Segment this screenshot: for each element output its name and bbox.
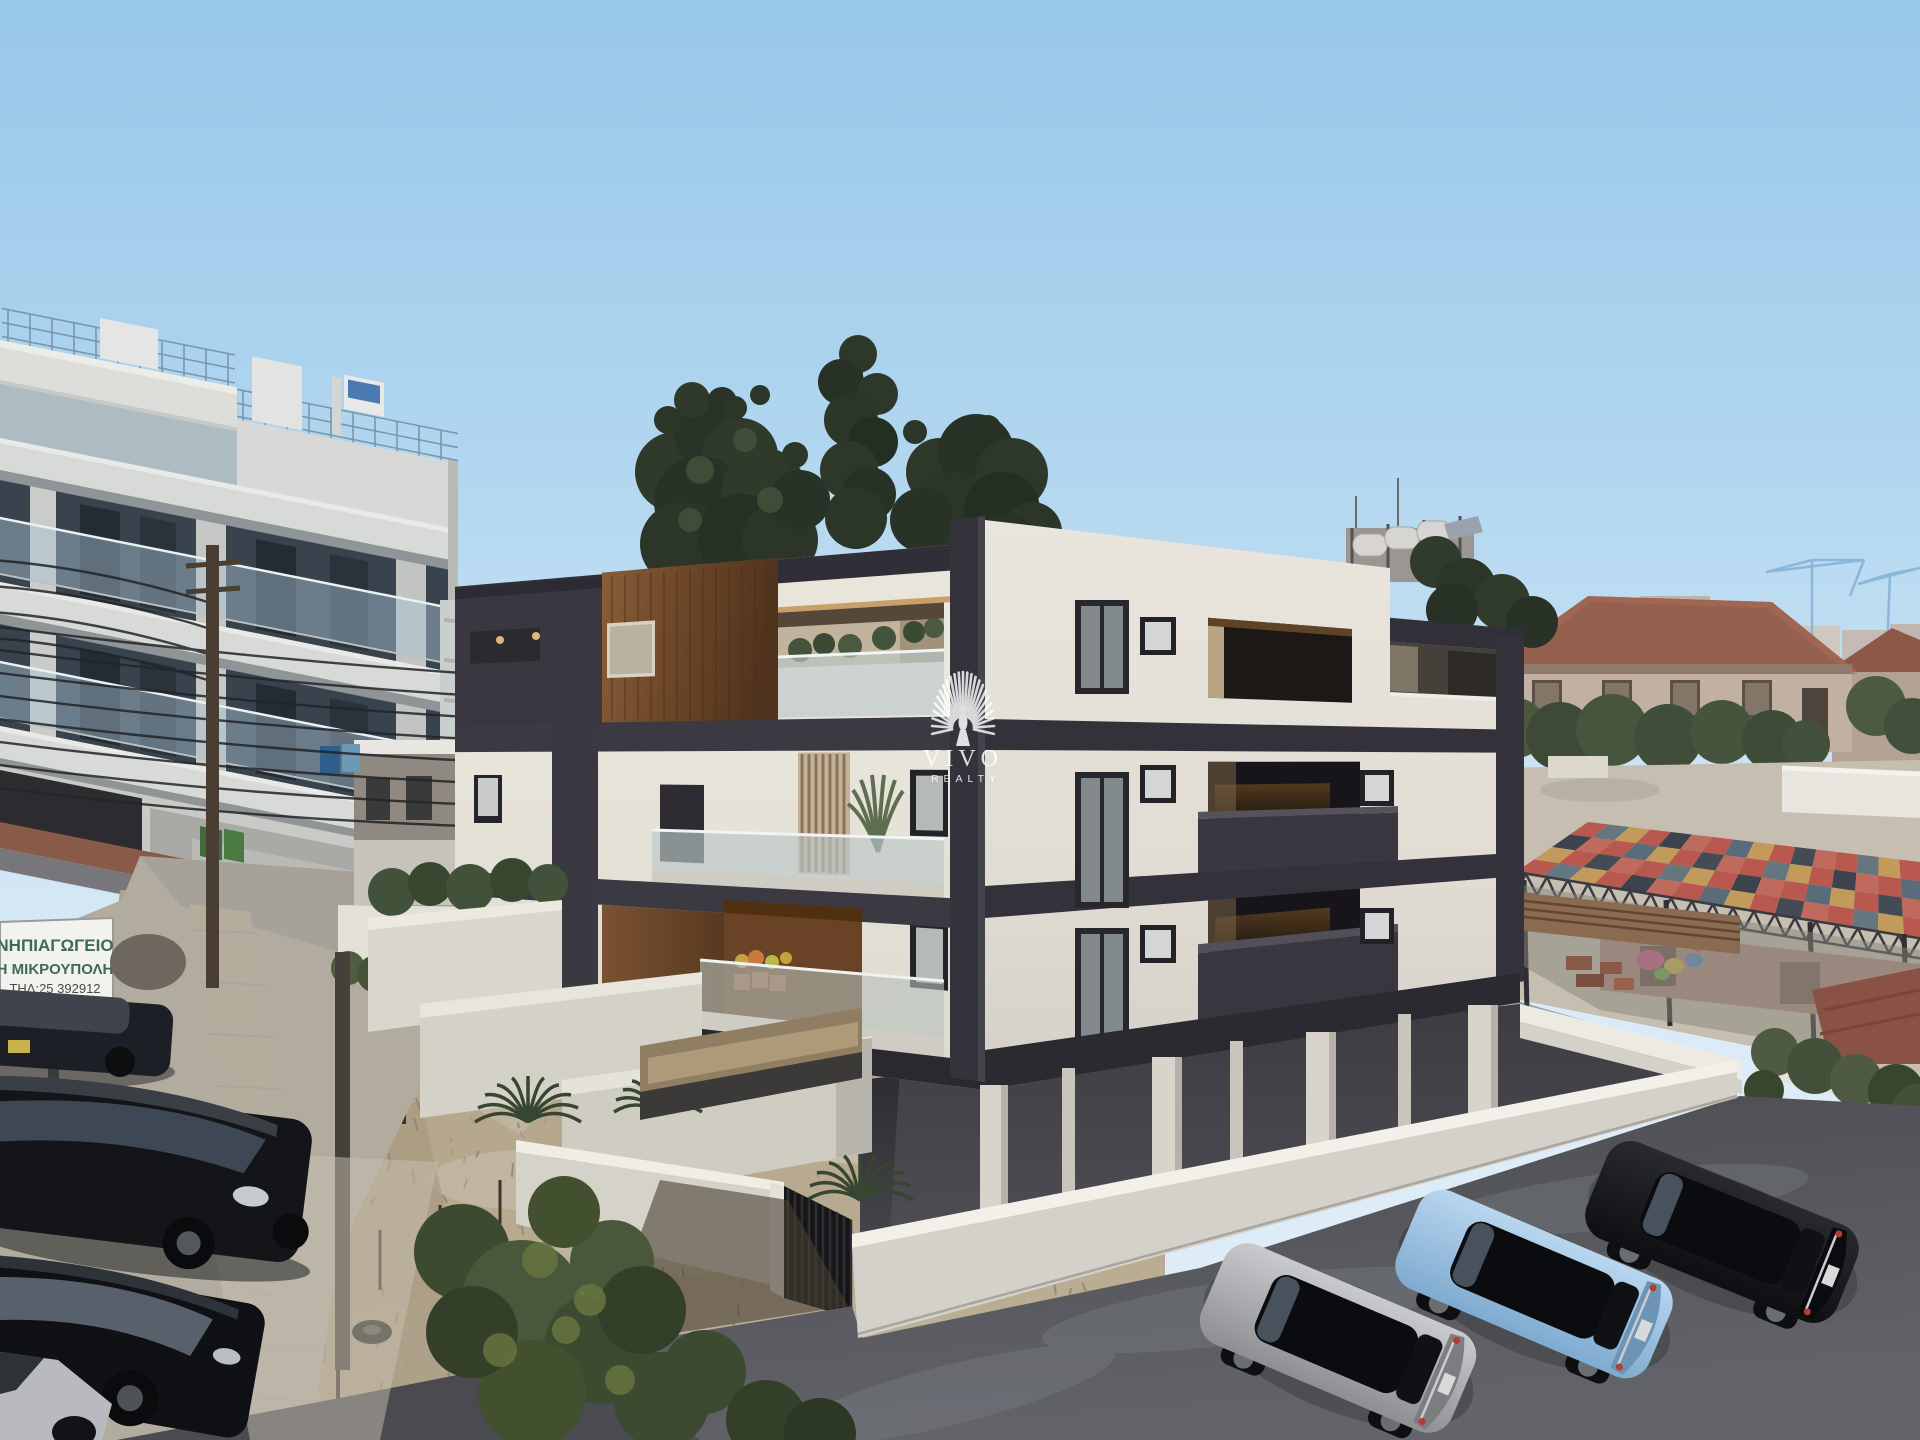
svg-text:VIVO: VIVO [923,746,1003,772]
svg-text:Η ΜΙΚΡΟΥΠΟΛΗ: Η ΜΙΚΡΟΥΠΟΛΗ [0,961,113,978]
svg-text:ΝΗΠΙΑΓΩΓΕΙΟ: ΝΗΠΙΑΓΩΓΕΙΟ [0,936,114,955]
svg-text:REALTY: REALTY [931,773,1001,785]
